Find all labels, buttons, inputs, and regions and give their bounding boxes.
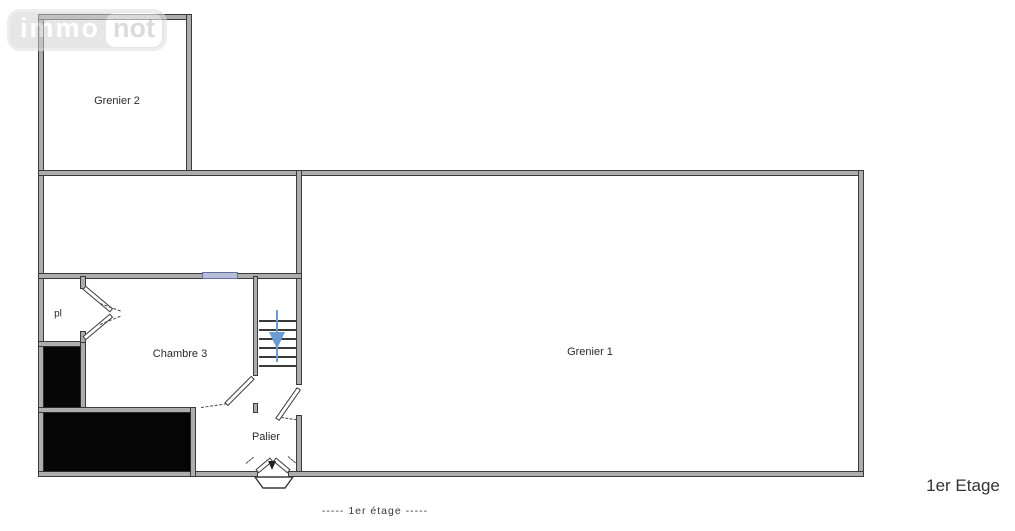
immonot-logo: immo not bbox=[7, 9, 167, 51]
room-label-closet: pl bbox=[54, 309, 62, 320]
entry-threshold bbox=[252, 476, 296, 490]
room-grenier-1 bbox=[302, 176, 858, 471]
room-closet bbox=[44, 279, 80, 341]
room-chambre-3 bbox=[86, 279, 253, 407]
wall-grenier2-right bbox=[186, 14, 192, 176]
shaft-large bbox=[43, 412, 191, 472]
floor-name-label: 1er Etage bbox=[926, 476, 1000, 496]
wall-bottom-right bbox=[288, 471, 864, 477]
room-label-grenier-2: Grenier 2 bbox=[94, 95, 140, 107]
room-unlabeled bbox=[44, 176, 296, 273]
floor-caption: ----- 1er étage ----- bbox=[322, 505, 428, 517]
shaft-small bbox=[43, 346, 81, 408]
logo-text-immo: immo bbox=[12, 13, 106, 47]
logo-text-not: not bbox=[106, 13, 162, 47]
stair-tread bbox=[259, 365, 296, 367]
window-icon bbox=[202, 272, 238, 279]
wall-grenier1-right bbox=[858, 170, 864, 477]
room-palier bbox=[196, 413, 296, 471]
floor-plan: immo not bbox=[0, 0, 1015, 531]
room-label-chambre-3: Chambre 3 bbox=[153, 348, 207, 360]
room-label-palier: Palier bbox=[252, 431, 280, 443]
room-label-grenier-1: Grenier 1 bbox=[567, 346, 613, 358]
stairs-down-arrow-icon bbox=[269, 332, 285, 349]
